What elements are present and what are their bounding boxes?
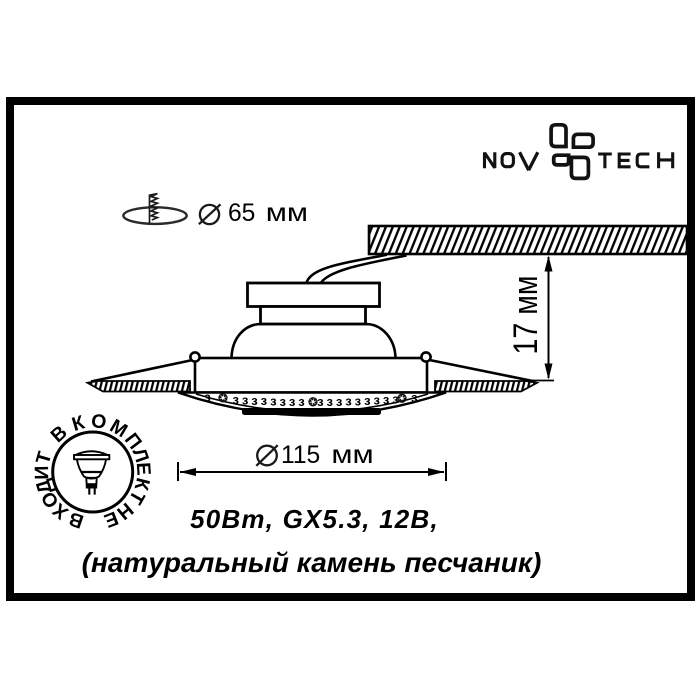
- svg-text:з: з: [317, 394, 324, 409]
- svg-text:з: з: [279, 394, 286, 409]
- svg-text:Е: Е: [132, 462, 155, 476]
- svg-text:И: И: [31, 466, 53, 480]
- svg-text:мм: мм: [266, 199, 308, 226]
- svg-text:з: з: [298, 394, 305, 409]
- svg-text:65: 65: [228, 200, 255, 227]
- svg-text:з: з: [251, 393, 258, 408]
- svg-text:з: з: [289, 394, 296, 409]
- svg-text:115: 115: [281, 442, 320, 469]
- svg-text:О: О: [90, 410, 108, 434]
- svg-text:з: з: [261, 393, 268, 408]
- svg-text:з: з: [336, 394, 343, 409]
- svg-text:з: з: [204, 390, 211, 405]
- svg-text:17 мм: 17 мм: [507, 276, 545, 355]
- svg-text:з: з: [355, 393, 362, 408]
- svg-text:(наmуральный камень песчаник): (наmуральный камень песчаник): [82, 547, 542, 578]
- svg-text:з: з: [232, 392, 239, 407]
- svg-text:з: з: [411, 390, 418, 405]
- svg-text:з: з: [373, 393, 380, 408]
- svg-text:50Вm, GX5.3, 12В,: 50Вm, GX5.3, 12В,: [190, 504, 439, 534]
- svg-text:з: з: [326, 394, 333, 409]
- svg-text:з: з: [383, 392, 390, 407]
- svg-text:з: з: [345, 394, 352, 409]
- svg-text:з: з: [364, 393, 371, 408]
- svg-text:мм: мм: [331, 441, 373, 468]
- svg-text:з: з: [270, 394, 277, 409]
- svg-text:з: з: [242, 392, 249, 407]
